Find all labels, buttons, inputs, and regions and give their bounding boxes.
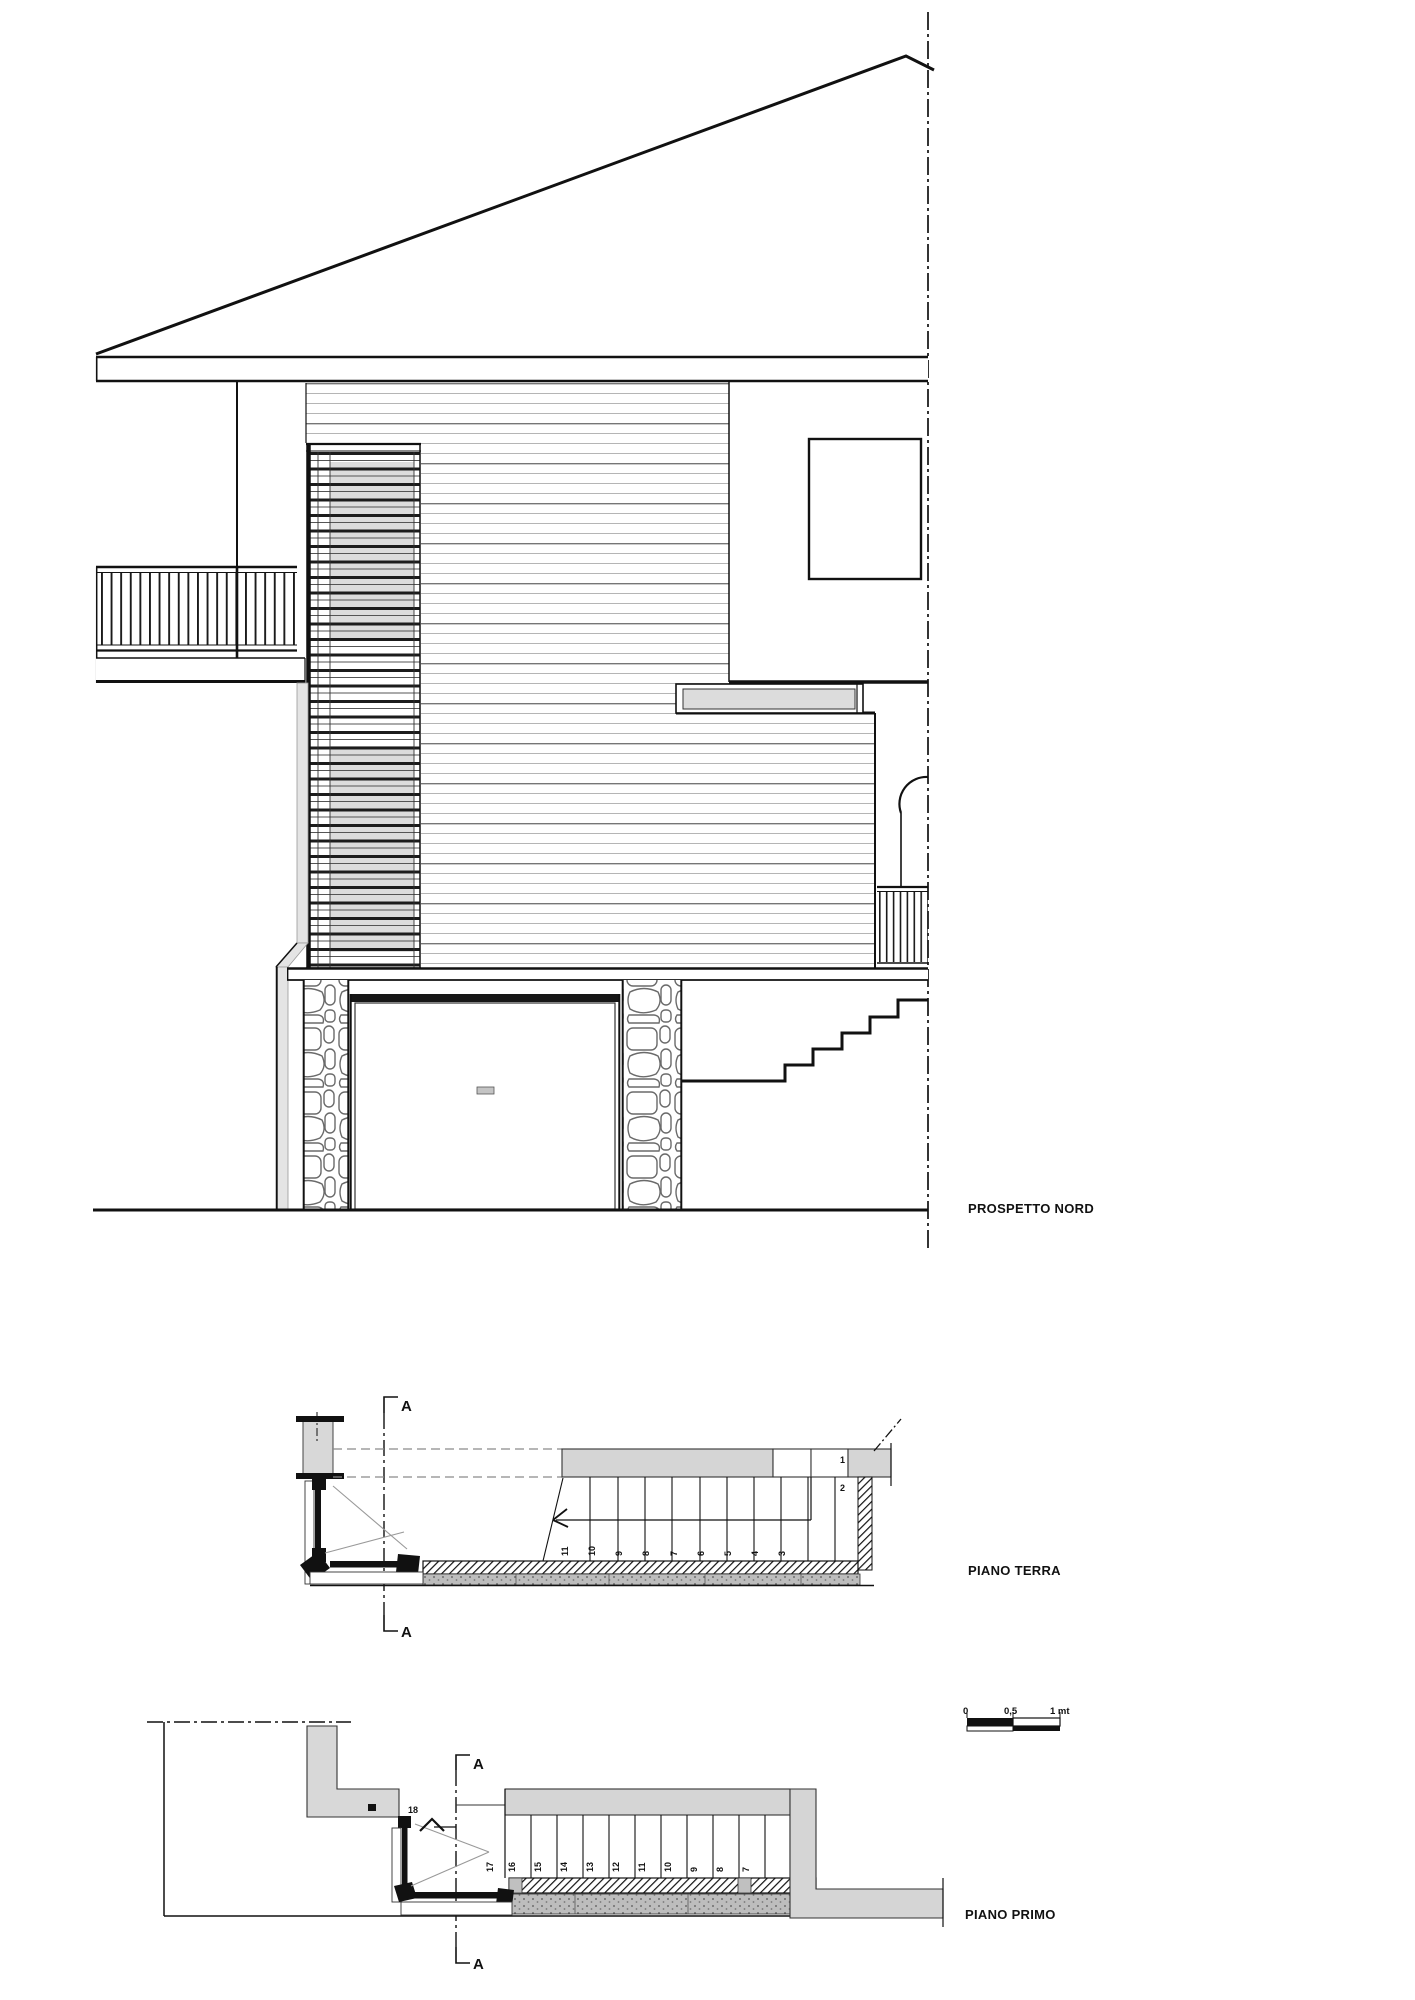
svg-text:14: 14 <box>559 1862 569 1872</box>
terra-walking-line <box>553 1477 811 1527</box>
drawing-canvas: PROSPETTO NORD A A 1 <box>0 0 1415 2000</box>
primo-corner-door: 18 <box>368 1804 514 1915</box>
svg-text:9: 9 <box>689 1867 699 1872</box>
svg-text:17: 17 <box>485 1862 495 1872</box>
section-letter-top: A <box>401 1398 412 1415</box>
plan-piano-terra: A A 1 2 <box>296 1397 1061 1641</box>
balcony-balusters <box>101 573 295 645</box>
architectural-sheet: PROSPETTO NORD A A 1 <box>0 0 1415 2000</box>
stone-pillar-right <box>622 980 682 1210</box>
door-swing-line <box>325 1532 404 1553</box>
balcony-slab <box>96 658 305 683</box>
floor-slab-band <box>287 968 928 980</box>
section-letter-bottom: A <box>401 1624 412 1641</box>
terra-wall-left <box>296 1412 344 1479</box>
svg-text:8: 8 <box>715 1867 725 1872</box>
primo-slab-band <box>505 1789 790 1815</box>
scale-half: 0,5 <box>1004 1706 1018 1717</box>
stone-pillar-left <box>303 980 349 1210</box>
svg-text:13: 13 <box>585 1862 595 1872</box>
scale-bar: 0 0,5 1 mt <box>963 1706 1070 1731</box>
svg-text:12: 12 <box>611 1862 621 1872</box>
section-letter-top: A <box>473 1756 484 1773</box>
stairs-elevation <box>682 1000 928 1081</box>
primo-step-numbers: 17 16 15 14 13 12 11 10 9 8 7 <box>485 1862 751 1872</box>
step-number-1: 1 <box>840 1455 845 1465</box>
terra-landing-slab: 1 2 <box>562 1419 901 1493</box>
svg-text:16: 16 <box>507 1862 517 1872</box>
primo-wall-right <box>790 1789 943 1918</box>
svg-text:8: 8 <box>641 1551 651 1556</box>
primo-stair-treads <box>531 1815 790 1878</box>
section-letter-bottom: A <box>473 1956 484 1973</box>
balcony <box>96 381 305 683</box>
svg-text:11: 11 <box>637 1862 647 1872</box>
roof <box>96 56 934 354</box>
terra-step-numbers: 11 10 9 8 7 6 5 4 3 <box>560 1546 787 1556</box>
upper-window <box>809 439 921 579</box>
garage-door-handle <box>477 1087 494 1094</box>
svg-text:15: 15 <box>533 1862 543 1872</box>
terra-dashed-projection <box>333 1449 562 1477</box>
top-step-number: 18 <box>408 1805 418 1815</box>
svg-text:3: 3 <box>777 1551 787 1556</box>
terra-corner-door <box>300 1478 423 1584</box>
svg-text:11: 11 <box>560 1546 570 1556</box>
clerestory-window <box>676 684 863 713</box>
terrace-railing <box>877 777 928 963</box>
plan-terra-label: PIANO TERRA <box>968 1563 1061 1578</box>
step-number-2: 2 <box>840 1483 845 1493</box>
elevation-prospetto-nord: PROSPETTO NORD <box>93 12 1094 1252</box>
svg-text:6: 6 <box>696 1551 706 1556</box>
svg-text:5: 5 <box>723 1551 733 1556</box>
svg-text:7: 7 <box>669 1551 679 1556</box>
scale-zero: 0 <box>963 1706 968 1717</box>
handrail-arc <box>899 777 928 813</box>
door-swing-line <box>333 1486 407 1549</box>
svg-text:10: 10 <box>587 1546 597 1556</box>
plan-piano-primo: A A 17 16 15 14 13 12 11 1 <box>147 1722 1056 1973</box>
primo-wall-left <box>307 1726 399 1817</box>
terrace-balusters <box>878 892 928 962</box>
primo-bottom-wall <box>509 1878 816 1914</box>
svg-text:9: 9 <box>614 1551 624 1556</box>
plan-primo-label: PIANO PRIMO <box>965 1907 1056 1922</box>
garage-door <box>350 994 620 1210</box>
section-marker-terra: A A <box>384 1397 412 1641</box>
fascia-band <box>96 357 928 381</box>
svg-text:7: 7 <box>741 1867 751 1872</box>
svg-text:10: 10 <box>663 1862 673 1872</box>
door-swing-line <box>411 1852 489 1886</box>
terra-hatched-wall <box>858 1477 872 1570</box>
louver-window <box>306 383 421 968</box>
door-swing-line <box>415 1824 489 1852</box>
primo-up-arrow <box>420 1819 456 1831</box>
svg-text:4: 4 <box>750 1551 760 1556</box>
elevation-label: PROSPETTO NORD <box>968 1201 1094 1216</box>
